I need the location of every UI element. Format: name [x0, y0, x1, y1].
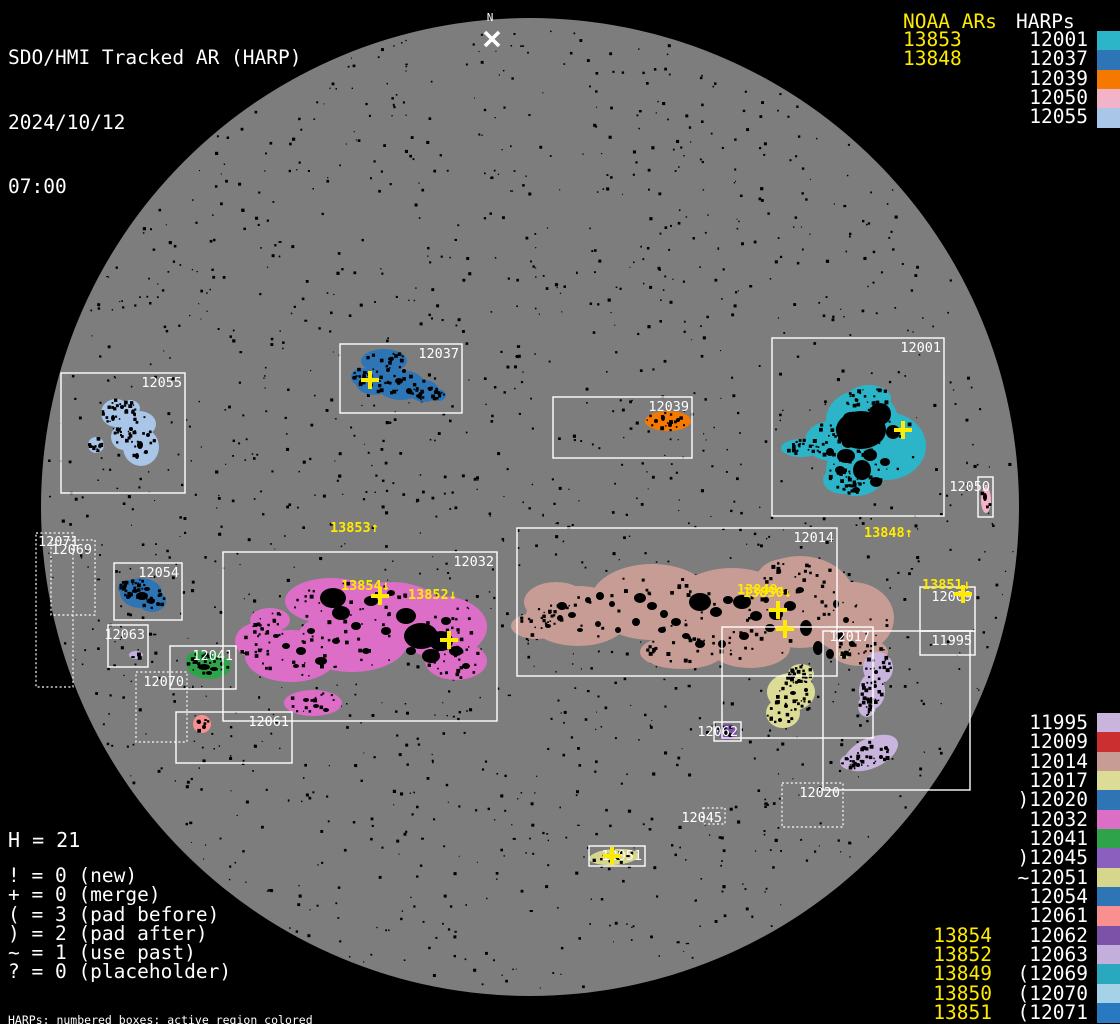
harp-color-swatch — [1097, 926, 1120, 945]
harp-color-swatch — [1097, 70, 1120, 89]
harp-number: )12020 — [992, 790, 1088, 809]
noaa-ar-disk-label: 13854↓ — [341, 578, 390, 594]
harp-color-swatch — [1097, 887, 1120, 906]
harp-box-label: 12001 — [900, 340, 941, 356]
harp-plot-canvas: 1205512037120391200112050120141203212054… — [0, 0, 1120, 1024]
harp-color-swatches-bottom — [1097, 713, 1120, 1023]
noaa-ar-number — [918, 848, 992, 867]
harp-color-swatch — [1097, 906, 1120, 925]
harp-box-label: 12037 — [418, 346, 459, 362]
noaa-ar-number — [918, 887, 992, 906]
harp-color-swatch — [1097, 732, 1120, 751]
harp-box-label: 12054 — [138, 565, 179, 581]
legend-item: ( = 3 (pad before) — [8, 905, 231, 924]
noaa-ar-disk-label: 13848↑ — [864, 525, 913, 541]
harp-box-label: 12032 — [453, 554, 494, 570]
harp-box-label: 12041 — [192, 648, 233, 664]
observation-date: 2024/10/12 — [8, 112, 302, 134]
footer-line-1: HARPs: numbered boxes; active region col… — [8, 1014, 410, 1024]
noaa-ar-number — [918, 829, 992, 848]
north-label: N — [487, 11, 494, 24]
harp-color-swatch — [1097, 89, 1120, 108]
footer-caption: HARPs: numbered boxes; active region col… — [8, 989, 410, 1024]
harp-number: 12061 — [992, 906, 1088, 925]
harp-box-12045: 12045 — [681, 808, 725, 826]
noaa-top-list: 1385313848 — [903, 30, 962, 69]
harp-color-swatch — [1097, 964, 1120, 983]
harp-color-swatch — [1097, 108, 1120, 127]
noaa-ar-number — [918, 732, 992, 751]
table-row: 13851(12071 — [918, 1003, 1088, 1022]
noaa-ar-number — [918, 713, 992, 732]
harp-color-swatch — [1097, 945, 1120, 964]
harp-color-swatch — [1097, 868, 1120, 887]
harp-box-label: 12062 — [697, 724, 738, 740]
harp-box-label: 12070 — [143, 674, 184, 690]
legend-item: ? = 0 (placeholder) — [8, 962, 231, 981]
harp-color-swatch — [1097, 1003, 1120, 1022]
harp-box-label: 12050 — [949, 479, 990, 495]
table-row: 12061 — [918, 906, 1088, 925]
harp-color-swatch — [1097, 771, 1120, 790]
harp-box-label: 12055 — [141, 375, 182, 391]
harp-color-swatch — [1097, 848, 1120, 867]
legend-item: + = 0 (merge) — [8, 885, 231, 904]
page-title: SDO/HMI Tracked AR (HARP) — [8, 47, 302, 69]
noaa-ar-number — [918, 810, 992, 829]
table-row: )12020 — [918, 790, 1088, 809]
symbol-legend: ! = 0 (new)+ = 0 (merge)( = 3 (pad befor… — [8, 866, 231, 982]
harp-box-label: 12039 — [648, 399, 689, 415]
noaa-ar-disk-label: 13852↓ — [408, 587, 457, 603]
harp-box-label: 11995 — [931, 633, 972, 649]
noaa-ar-number — [918, 868, 992, 887]
harp-number: (12069 — [992, 964, 1088, 983]
observation-time: 07:00 — [8, 176, 302, 198]
harp-box-label: 12014 — [793, 530, 834, 546]
harp-number: 12055 — [1014, 107, 1088, 126]
harp-box-label: 12061 — [248, 714, 289, 730]
noaa-ar-number — [918, 790, 992, 809]
harp-color-swatch — [1097, 829, 1120, 848]
table-row: 12009 — [918, 732, 1088, 751]
noaa-ar-number: 13851 — [918, 1003, 992, 1022]
noaa-ar-number: 13849 — [918, 964, 992, 983]
noaa-ar-disk-label: 13850↓ — [743, 585, 792, 601]
table-row: )12045 — [918, 848, 1088, 867]
noaa-ar-number — [918, 771, 992, 790]
harp-color-swatches-top — [1097, 31, 1120, 128]
title-block: SDO/HMI Tracked AR (HARP) 2024/10/12 07:… — [8, 4, 302, 241]
harp-number: 12037 — [1014, 49, 1088, 68]
harp-color-swatch — [1097, 713, 1120, 732]
harp-box-label: 12063 — [104, 627, 145, 643]
harp-color-swatch — [1097, 984, 1120, 1003]
harp-box-label: 12020 — [799, 785, 840, 801]
active-region-12061 — [193, 715, 211, 733]
noaa-ar-number: 13848 — [903, 49, 962, 68]
harp-number: 12009 — [992, 732, 1088, 751]
harp-number: )12045 — [992, 848, 1088, 867]
harp-color-swatch — [1097, 31, 1120, 50]
harp-color-swatch — [1097, 790, 1120, 809]
table-row: 13849(12069 — [918, 964, 1088, 983]
harp-noaa-table: 11995120091201412017)120201203212041)120… — [918, 713, 1088, 1023]
harp-color-swatch — [1097, 810, 1120, 829]
noaa-ar-disk-label: 13853↑ — [330, 520, 379, 536]
harp-count: H = 21 — [8, 828, 80, 852]
noaa-ar-number — [918, 906, 992, 925]
harp-box-12062: 12062 — [697, 722, 741, 741]
harp-color-swatch — [1097, 752, 1120, 771]
harp-box-label: 12069 — [51, 542, 92, 558]
harp-color-swatch — [1097, 50, 1120, 69]
harp-box-label: 12045 — [681, 810, 722, 826]
harp-top-list: 1200112037120391205012055 — [1014, 30, 1088, 127]
noaa-ar-number — [918, 752, 992, 771]
harp-number: (12071 — [992, 1003, 1088, 1022]
